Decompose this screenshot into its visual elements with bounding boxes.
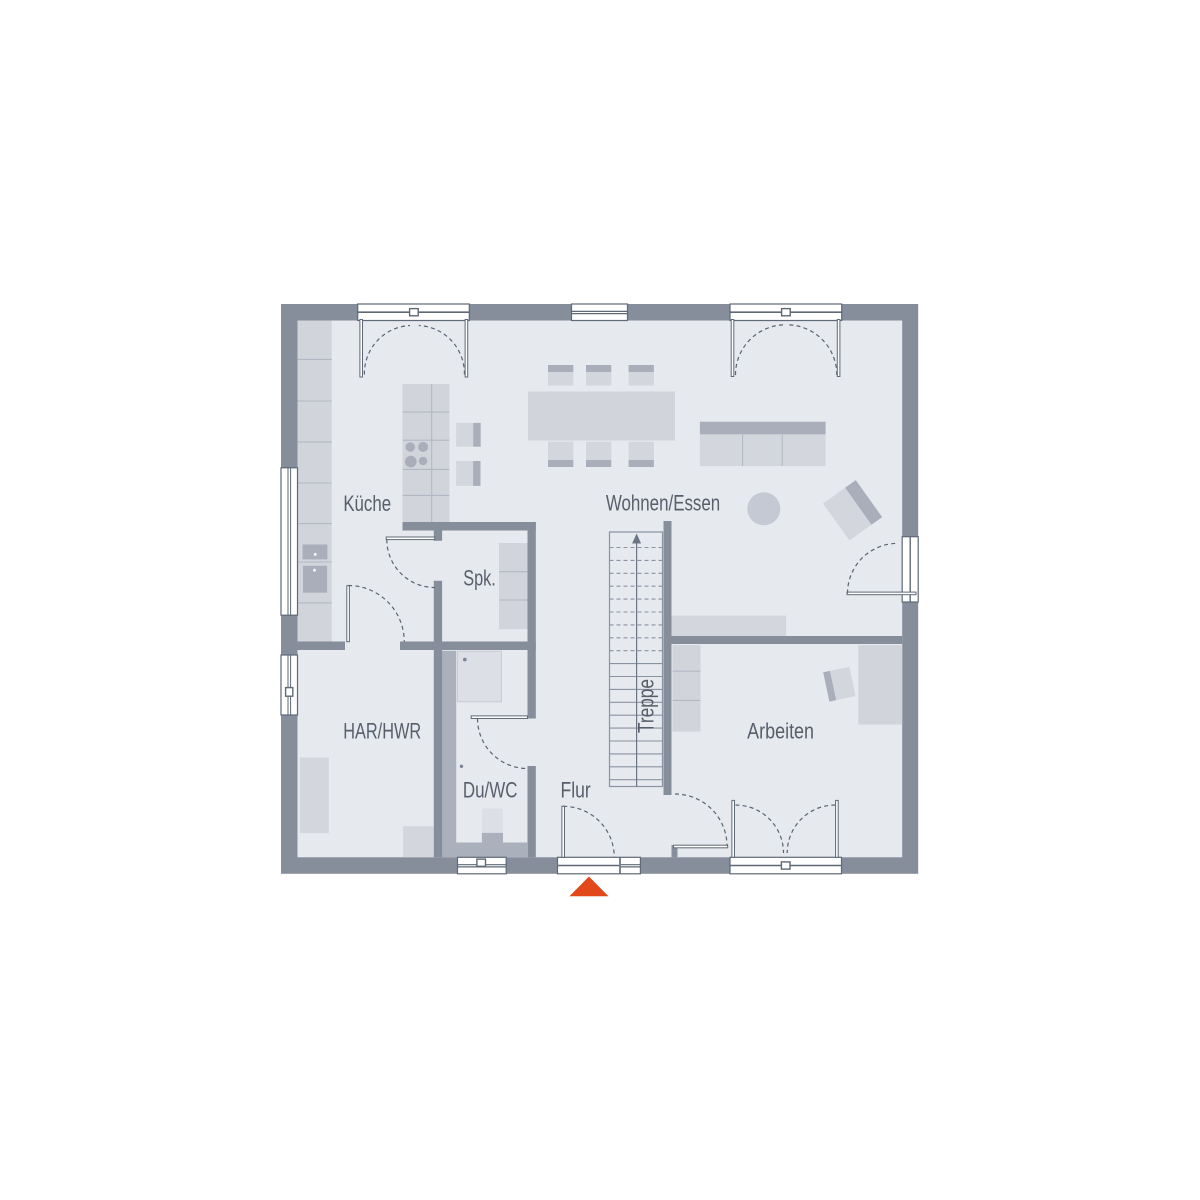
svg-text:Flur: Flur <box>561 779 591 804</box>
svg-text:Du/WC: Du/WC <box>463 778 518 803</box>
svg-text:HAR/HWR: HAR/HWR <box>343 719 421 744</box>
svg-text:Küche: Küche <box>343 492 391 517</box>
svg-text:Arbeiten: Arbeiten <box>747 720 814 744</box>
svg-text:Treppe: Treppe <box>634 679 659 733</box>
svg-text:Wohnen/Essen: Wohnen/Essen <box>606 491 720 516</box>
svg-text:Spk.: Spk. <box>463 566 496 591</box>
